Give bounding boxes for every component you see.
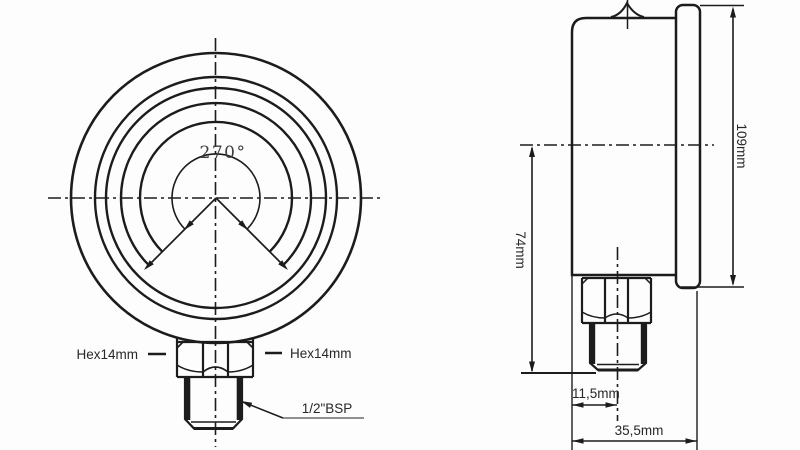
dim-11-5mm-label: 11,5mm <box>572 386 620 401</box>
dim-35-5mm-label: 35,5mm <box>615 423 664 438</box>
angle-radius-line-left <box>146 198 216 268</box>
hex-fitting-side <box>582 278 651 323</box>
dim-109mm: 109mm <box>681 6 749 288</box>
dim-74mm-label: 74mm <box>513 231 528 269</box>
thread-label: 1/2"BSP <box>302 401 353 416</box>
case-body-outline <box>572 18 676 275</box>
front-view: 270° Hex14mm Hex14mm 1/2"BSP <box>48 38 384 447</box>
thread-leader-line <box>243 402 283 418</box>
dim-35-5mm: 35,5mm <box>572 423 697 444</box>
side-view: 74mm 109mm 11,5mm 35,5mm <box>513 0 749 450</box>
technical-drawing: 270° Hex14mm Hex14mm 1/2"BSP <box>0 0 800 450</box>
dim-74mm: 74mm <box>513 146 596 373</box>
dim-11-5mm: 11,5mm <box>572 386 620 408</box>
hex-label-right: Hex14mm <box>290 346 352 361</box>
dim-109mm-label: 109mm <box>734 123 749 168</box>
gauge-drawing-canvas: 270° Hex14mm Hex14mm 1/2"BSP <box>0 0 800 450</box>
angle-label: 270° <box>200 143 247 163</box>
angle-radius-line-right <box>216 198 286 268</box>
back-rim-outline <box>676 5 700 288</box>
hex-chamfer-arcs-side <box>582 278 651 318</box>
threaded-stem-front <box>185 377 242 429</box>
hex-label-left: Hex14mm <box>76 347 138 362</box>
